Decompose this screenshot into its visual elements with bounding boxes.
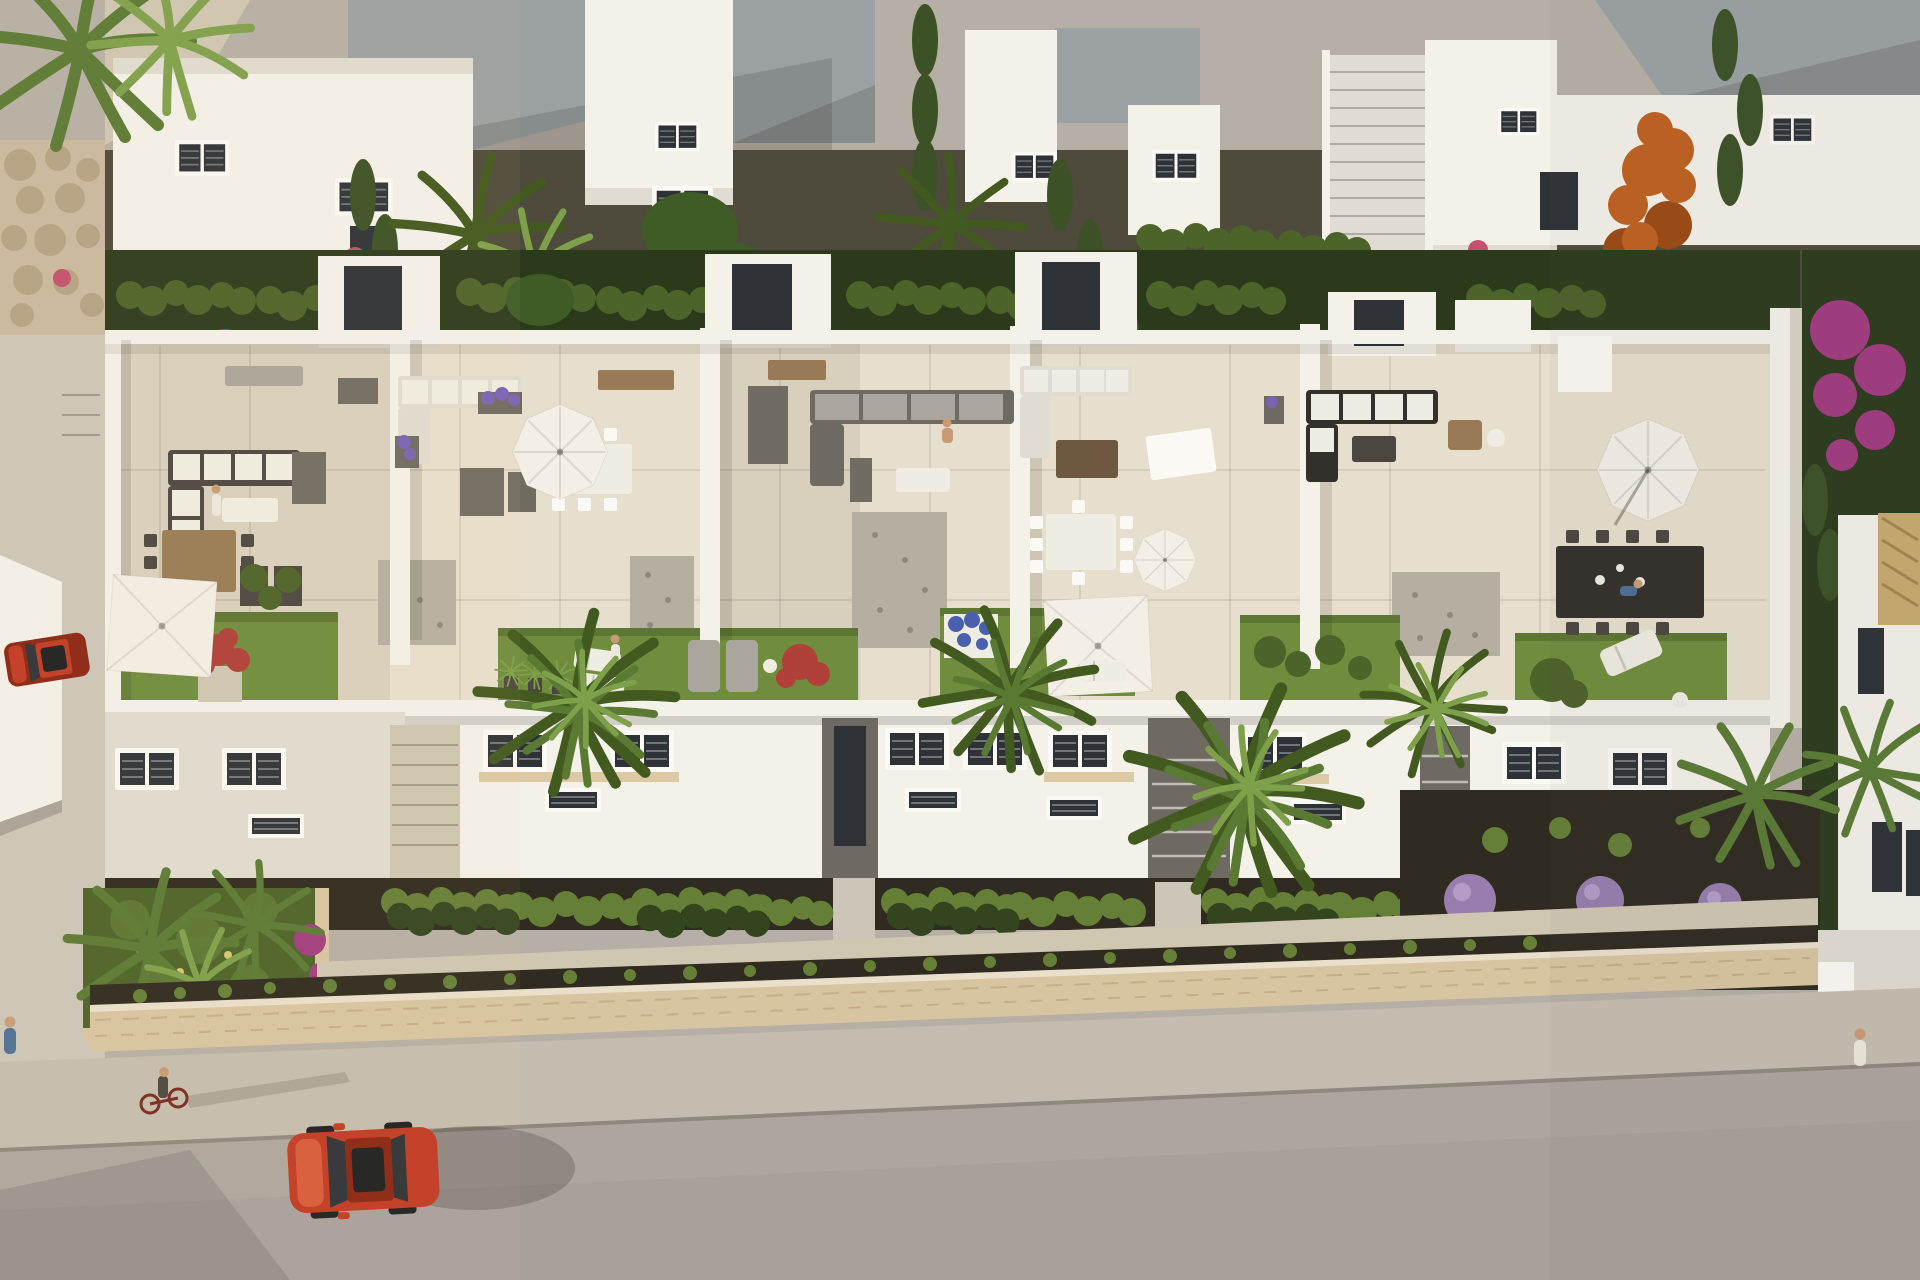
villa-window	[655, 122, 700, 151]
white-dining-table-long	[1046, 514, 1116, 570]
person-terrace-3	[942, 419, 953, 444]
facade-window-slit	[1046, 796, 1102, 820]
gray-lounger	[688, 640, 720, 692]
facade-window	[885, 728, 949, 770]
facade-window	[1048, 730, 1112, 772]
gray-lounger	[726, 640, 758, 692]
warm-sunlight-overlay	[0, 0, 520, 1280]
villa-window	[1152, 150, 1200, 182]
round-parasol-unit4	[1134, 529, 1196, 591]
aerial-render-canvas	[0, 0, 1920, 1280]
facade-window-slit	[905, 788, 961, 812]
round-parasol-unit2	[513, 405, 608, 500]
cool-shade-overlay	[1550, 0, 1920, 1280]
villa-window	[1498, 108, 1540, 135]
